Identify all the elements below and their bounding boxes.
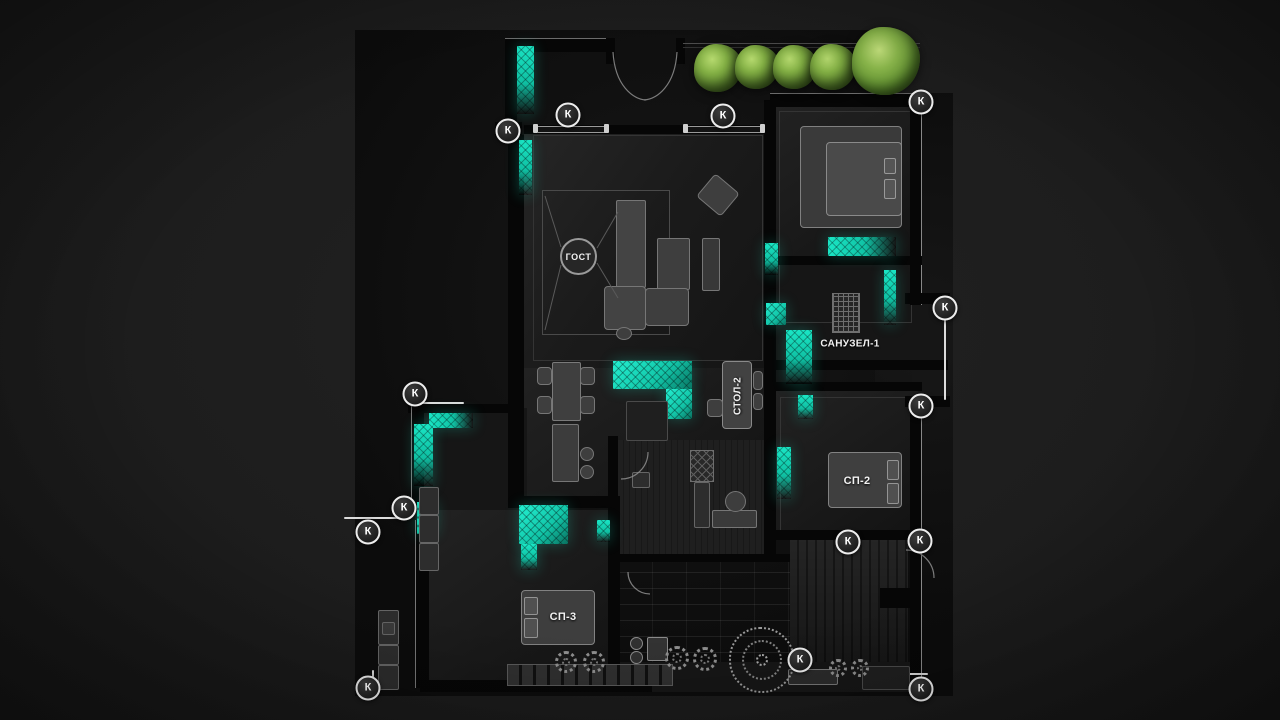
- gray-shrub: [555, 651, 577, 673]
- vanity: [694, 482, 710, 528]
- ac-marker[interactable]: К: [556, 103, 581, 128]
- laundry-unit: [632, 472, 650, 488]
- plant-pot: [630, 651, 643, 664]
- ac-flow: [597, 520, 610, 542]
- wall: [910, 95, 922, 305]
- pillow: [524, 618, 538, 638]
- ac-marker[interactable]: К: [496, 119, 521, 144]
- dining-table: [552, 362, 581, 421]
- ac-marker[interactable]: К: [909, 394, 934, 419]
- gray-shrub: [665, 646, 689, 670]
- living-label-circle: ГОСТ: [560, 238, 597, 275]
- cabinet: [657, 238, 690, 290]
- wall: [764, 100, 776, 368]
- wall-cabinet: [378, 665, 399, 690]
- window-tick: [683, 124, 688, 133]
- living-label: ГОСТ: [566, 252, 592, 262]
- ac-flow: [777, 447, 791, 499]
- toilet-bowl: [725, 491, 746, 512]
- bedroom-2-label: СП-2: [844, 475, 871, 487]
- bedroom-3-label: СП-3: [550, 611, 577, 623]
- cabinet: [419, 543, 439, 571]
- ac-flow: [517, 46, 534, 114]
- ac-marker[interactable]: К: [403, 382, 428, 407]
- chair: [537, 396, 552, 414]
- ac-marker[interactable]: К: [908, 529, 933, 554]
- window-tick: [533, 124, 538, 133]
- ac-marker[interactable]: К: [909, 677, 934, 702]
- wall: [608, 554, 790, 562]
- wall: [880, 588, 911, 608]
- kitchen-island: [552, 424, 579, 482]
- ac-marker[interactable]: К: [909, 90, 934, 115]
- planter-box: [862, 666, 910, 690]
- window: [538, 126, 608, 133]
- ac-flow: [798, 395, 813, 419]
- kitchen-counter-glow: [666, 389, 692, 419]
- wall-line: [944, 316, 946, 400]
- ac-marker[interactable]: К: [392, 496, 417, 521]
- ac-flow: [519, 140, 532, 195]
- ac-marker[interactable]: К: [356, 520, 381, 545]
- wall: [772, 256, 922, 265]
- gray-shrub: [693, 647, 717, 671]
- ac-flow: [519, 505, 568, 544]
- floor-plan: ГОСТ САНУЗЕЛ-1 СТОЛ-2 СП-2 СП-3: [0, 0, 1280, 720]
- wall-door-post: [676, 38, 685, 64]
- ac-flow: [429, 413, 473, 428]
- kitchen-appliance: [626, 401, 668, 441]
- ottoman: [616, 327, 632, 340]
- shower-tray: [832, 293, 860, 333]
- wall-cabinet: [378, 645, 399, 665]
- window-tick: [760, 124, 765, 133]
- tv-unit: [616, 200, 646, 288]
- sofa: [604, 286, 646, 330]
- chair: [537, 367, 552, 385]
- stool: [580, 465, 594, 479]
- pillow: [884, 158, 896, 174]
- window-tick: [604, 124, 609, 133]
- ac-marker[interactable]: К: [788, 648, 813, 673]
- wall-door-post: [606, 38, 615, 64]
- cabinet: [419, 515, 439, 543]
- gray-shrub: [583, 651, 605, 673]
- chair: [753, 393, 763, 410]
- big-gray-plant: [729, 627, 795, 693]
- side-table: [702, 238, 720, 291]
- pillow: [887, 483, 899, 504]
- cabinet: [419, 487, 439, 515]
- ac-flow: [765, 243, 778, 275]
- chair: [580, 367, 595, 385]
- plant-pot: [630, 637, 643, 650]
- ac-flow: [521, 544, 537, 570]
- kitchen-counter-glow: [613, 361, 692, 389]
- chair: [707, 399, 723, 417]
- ac-flow: [828, 237, 896, 256]
- pillow: [884, 179, 896, 199]
- ac-flow: [766, 303, 786, 325]
- wall: [910, 536, 922, 688]
- chair: [753, 371, 763, 390]
- gray-shrub: [829, 659, 847, 677]
- sofa: [645, 288, 689, 326]
- pillow: [524, 597, 538, 615]
- ac-marker[interactable]: К: [933, 296, 958, 321]
- wall: [770, 93, 920, 107]
- table-2-label: СТОЛ-2: [733, 377, 744, 415]
- stool: [580, 447, 594, 461]
- ac-marker[interactable]: К: [711, 104, 736, 129]
- toilet-tank: [712, 510, 757, 528]
- tree-plant: [852, 27, 920, 95]
- pillow: [887, 460, 899, 480]
- shower: [690, 450, 714, 482]
- ac-flow: [414, 424, 433, 486]
- wall: [910, 404, 922, 536]
- ac-flow: [884, 270, 896, 325]
- ac-marker[interactable]: К: [356, 676, 381, 701]
- wall-cabinet-inner: [382, 622, 395, 635]
- gray-shrub: [851, 659, 869, 677]
- table-2: СТОЛ-2: [722, 361, 752, 429]
- ac-flow: [786, 330, 812, 384]
- ac-marker[interactable]: К: [836, 530, 861, 555]
- chair: [580, 396, 595, 414]
- bathroom-1-label: САНУЗЕЛ-1: [820, 339, 879, 350]
